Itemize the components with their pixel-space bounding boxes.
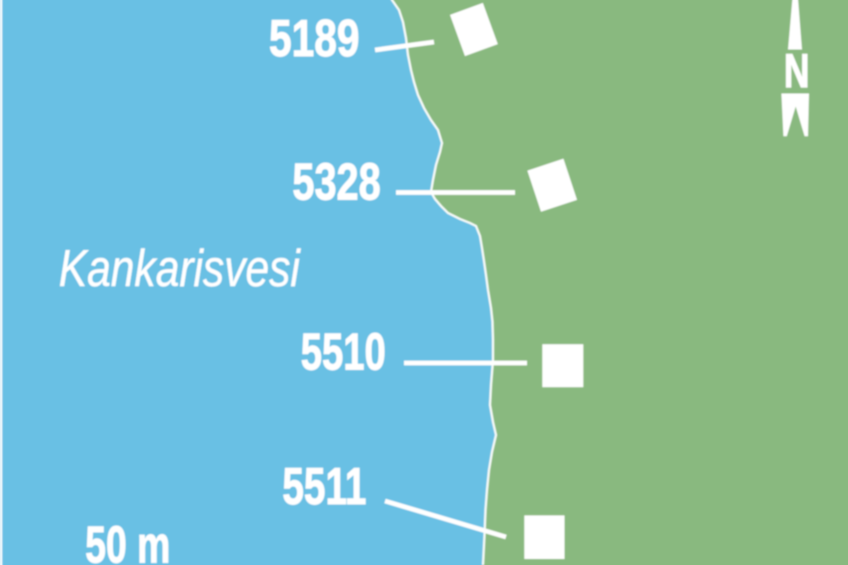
svg-text:Kankarisvesi: Kankarisvesi — [59, 240, 301, 298]
svg-text:50 m: 50 m — [85, 517, 170, 565]
svg-text:5511: 5511 — [282, 458, 366, 516]
svg-text:5189: 5189 — [269, 10, 360, 68]
svg-text:5328: 5328 — [292, 154, 380, 212]
svg-text:N: N — [784, 44, 809, 97]
svg-text:5510: 5510 — [301, 324, 386, 382]
